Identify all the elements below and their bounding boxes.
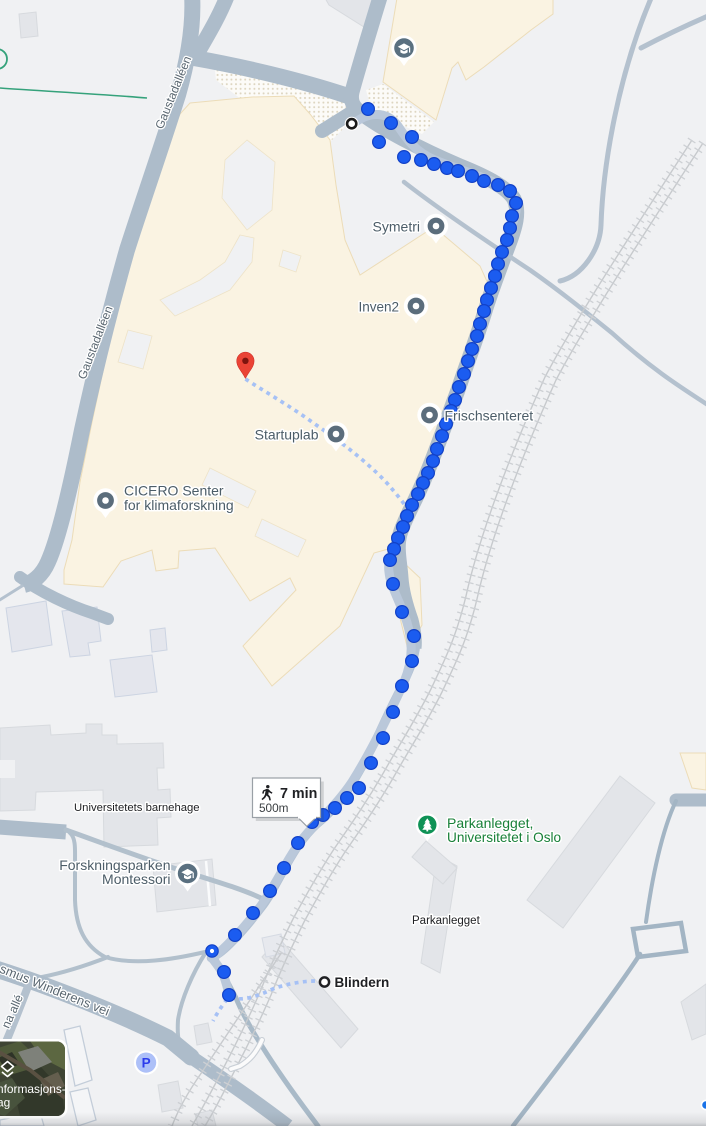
svg-text:nformasjons-: nformasjons-: [0, 1082, 66, 1096]
svg-text:Frischsenteret: Frischsenteret: [445, 408, 534, 424]
svg-text:Parkanlegget,: Parkanlegget,: [447, 815, 533, 831]
svg-text:Startuplab: Startuplab: [255, 427, 319, 443]
svg-text:P: P: [142, 1056, 151, 1071]
svg-text:Parkanlegget: Parkanlegget: [412, 915, 481, 927]
svg-text:Symetri: Symetri: [373, 219, 420, 235]
svg-text:7 min: 7 min: [280, 786, 317, 802]
svg-text:Universitetet i Oslo: Universitetet i Oslo: [447, 830, 561, 845]
svg-text:500m: 500m: [259, 801, 289, 815]
svg-text:Montessori: Montessori: [102, 871, 170, 887]
svg-text:Blindern: Blindern: [335, 975, 390, 990]
svg-text:Universitetets barnehage: Universitetets barnehage: [74, 802, 200, 814]
svg-text:for klimaforskning: for klimaforskning: [124, 497, 234, 513]
svg-text:ag: ag: [0, 1096, 10, 1110]
svg-text:Inven2: Inven2: [358, 300, 399, 315]
